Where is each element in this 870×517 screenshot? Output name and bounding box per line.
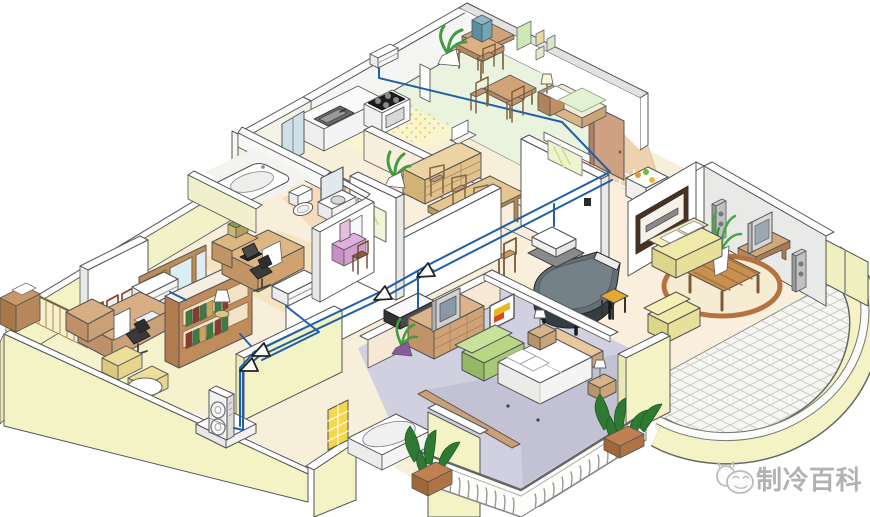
svg-text:制冷百科: 制冷百科 (756, 465, 862, 495)
